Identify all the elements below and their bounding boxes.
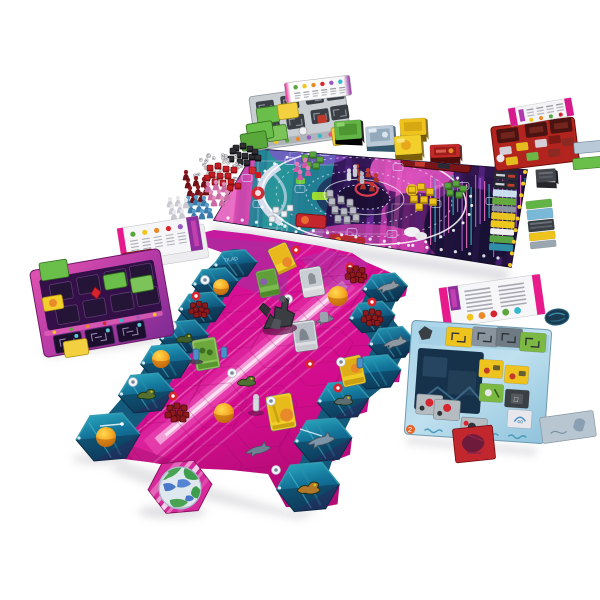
svg-text:2: 2 (408, 427, 412, 434)
svg-text:∞: ∞ (517, 417, 524, 426)
